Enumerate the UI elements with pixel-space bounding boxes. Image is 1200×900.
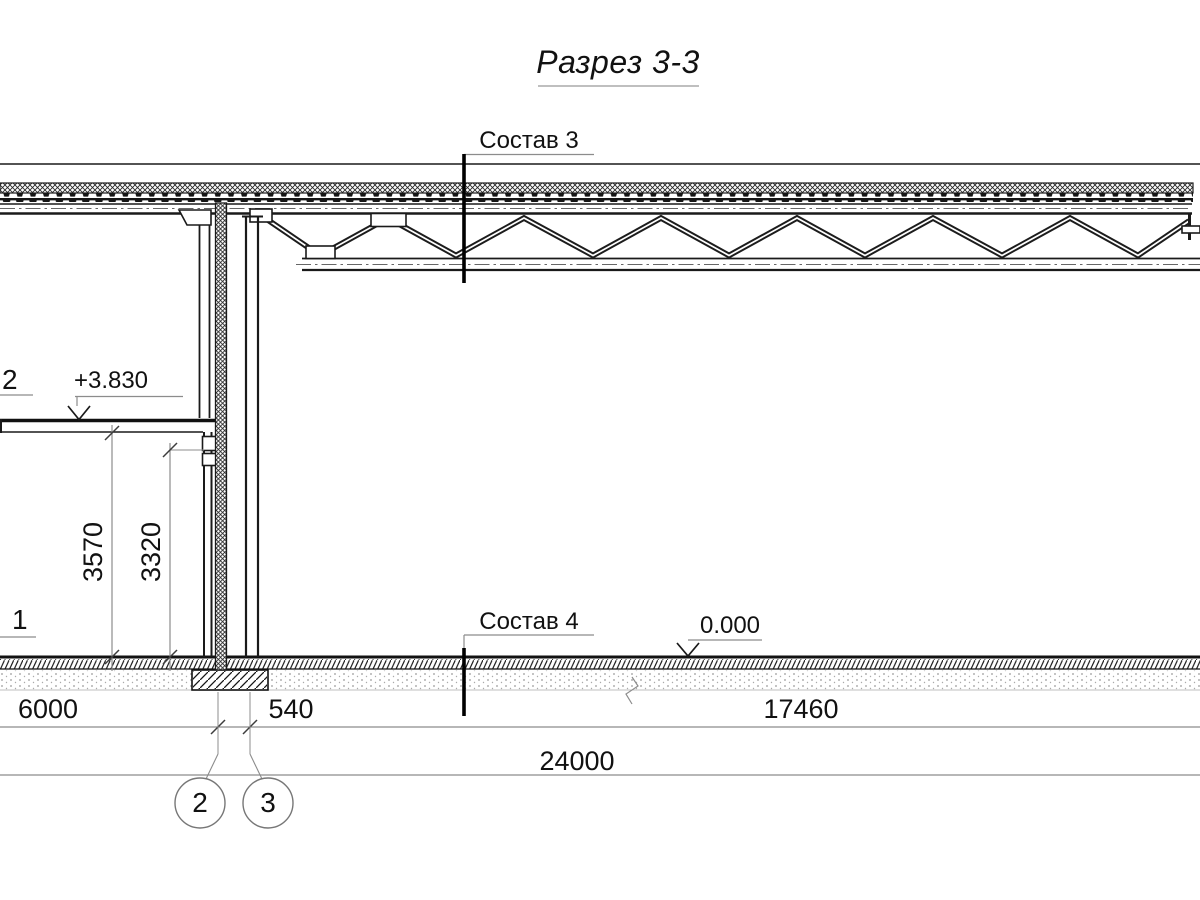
wall-panel	[216, 203, 227, 670]
column-bracket	[179, 210, 211, 225]
callout-label-1: 1	[12, 606, 28, 634]
foundation-block	[192, 670, 268, 690]
dimension-24000: 24000	[517, 748, 637, 775]
section-drawing: Разрез 3-3 Состав 3 Состав 4 +3.830 0.00…	[0, 0, 1200, 900]
ground-floor-slab	[0, 657, 1200, 690]
elevation-arrow-3830	[68, 406, 90, 420]
dimension-6000: 6000	[0, 696, 108, 723]
beam-section	[203, 437, 217, 451]
elevation-arrow-0000	[677, 643, 699, 656]
truss-bottom-chord	[296, 259, 1200, 271]
elevation-label-second-floor: +3.830	[61, 369, 161, 393]
grid-bubble-2-label: 2	[175, 788, 225, 818]
grid-bubble-3-label: 3	[243, 788, 293, 818]
vertical-dimension-3320: 3320	[138, 507, 166, 597]
roof-assembly	[0, 164, 1200, 214]
section-marker-roof: Состав 3	[464, 129, 594, 153]
truss-top-gusset	[371, 214, 406, 227]
elevation-label-ground: 0.000	[680, 614, 780, 638]
elevation-marks	[68, 397, 762, 657]
drawing-title: Разрез 3-3	[518, 46, 718, 78]
vertical-dimension-3570: 3570	[80, 507, 108, 597]
truss-bearing-plate	[306, 246, 335, 259]
callout-label-2: 2	[2, 366, 18, 394]
profiled-deck	[0, 193, 1193, 202]
insulation-layer	[0, 183, 1193, 193]
dimension-540: 540	[231, 696, 351, 723]
section-marker-floor: Состав 4	[464, 610, 594, 634]
dimension-17460: 17460	[741, 696, 861, 723]
steel-truss	[250, 209, 1200, 270]
